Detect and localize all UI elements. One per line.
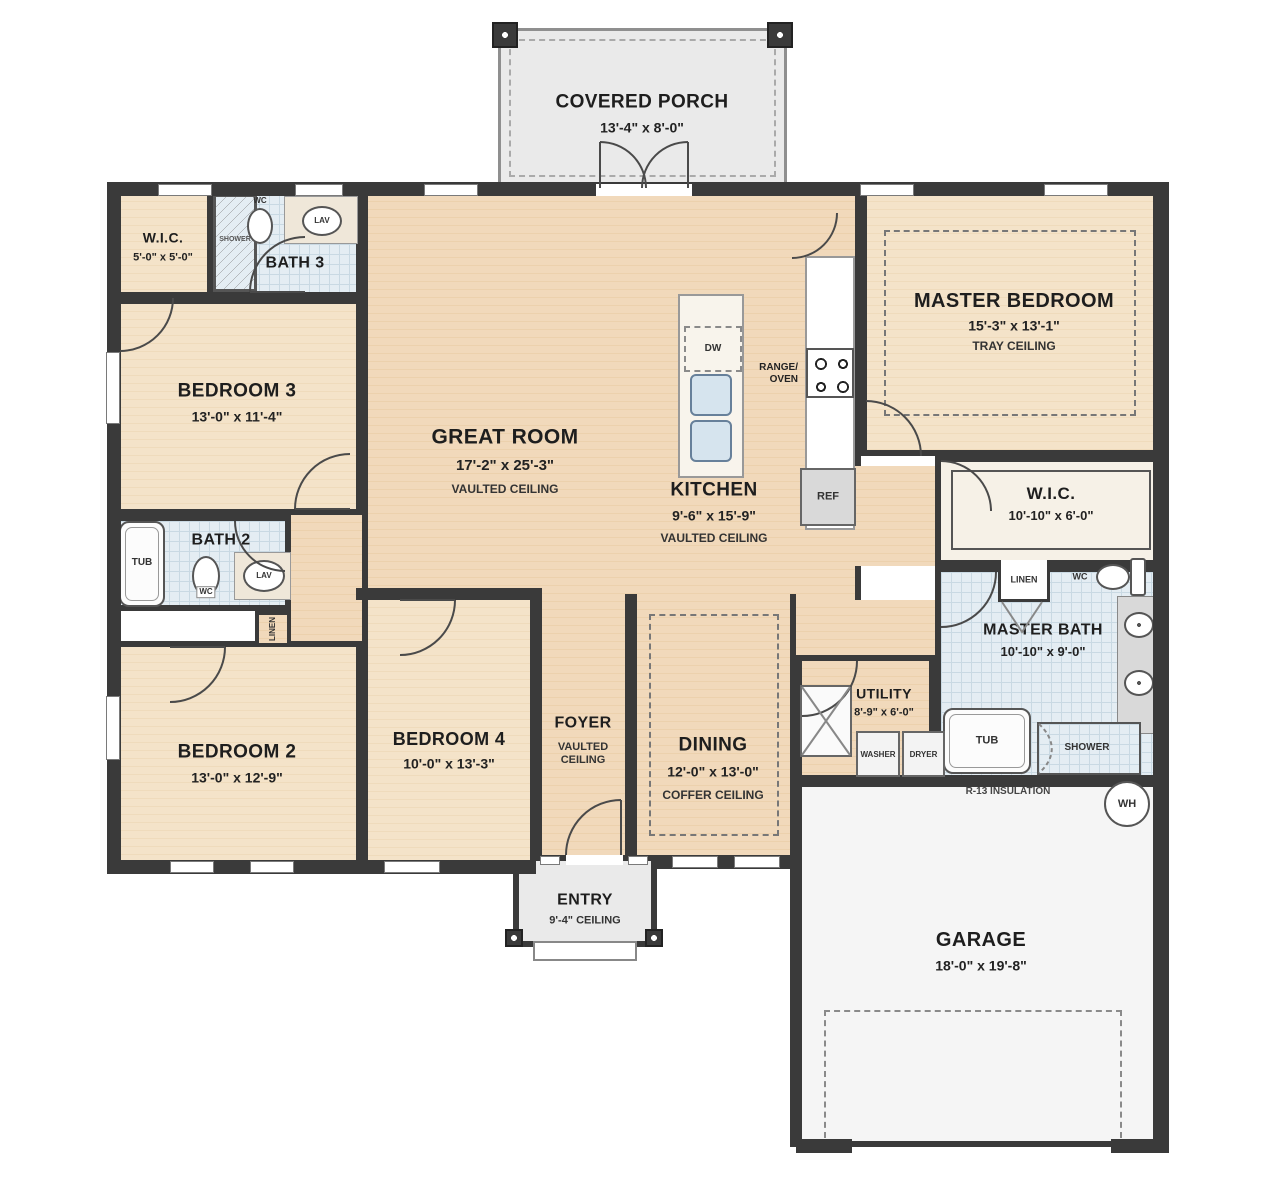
window-top-2	[295, 184, 343, 196]
label-mbath-name: MASTER BATH	[983, 620, 1103, 639]
label-wc-bath3: WC	[253, 196, 266, 206]
label-master-dims: 15'-3" x 13'-1"	[968, 318, 1060, 335]
label-garage-name: GARAGE	[936, 928, 1026, 952]
entry-post-left	[505, 929, 523, 947]
label-linen-master: LINEN	[1011, 575, 1038, 586]
porch-post-right	[767, 22, 793, 48]
wall-right	[1153, 182, 1169, 1153]
label-utility-dims: 8'-9" x 6'-0"	[854, 706, 914, 719]
label-greatroom-dims: 17'-2" x 25'-3"	[456, 457, 554, 475]
label-utility-name: UTILITY	[856, 686, 912, 703]
label-lav-bath3: LAV	[314, 216, 329, 226]
label-mbath-dims: 10'-10" x 9'-0"	[1000, 644, 1085, 660]
dryer-label: DRYER	[910, 750, 938, 759]
label-shower-master: SHOWER	[1065, 742, 1110, 754]
label-bath2-name: BATH 2	[192, 530, 251, 549]
sink-master-1	[1124, 612, 1154, 638]
washer-icon: WASHER	[856, 731, 900, 777]
toilet-master-bowl	[1096, 564, 1130, 590]
window-bedroom2-left	[106, 696, 120, 760]
label-bedroom2-dims: 13'-0" x 12'-9"	[191, 770, 283, 787]
label-kitchen-name: KITCHEN	[670, 480, 757, 503]
label-porch-dims: 13'-4" x 8'-0"	[600, 120, 684, 137]
dryer-icon: DRYER	[902, 731, 945, 777]
porch-door-opening	[596, 184, 692, 196]
room-bedroom3	[113, 298, 362, 515]
label-entry-name: ENTRY	[557, 890, 613, 909]
entry-post-right	[645, 929, 663, 947]
hall-bedrooms	[291, 515, 362, 641]
label-dining-name: DINING	[679, 735, 748, 758]
label-greatroom-note: VAULTED CEILING	[452, 482, 559, 496]
window-top-1	[158, 184, 212, 196]
label-entry-note: 9'-4" CEILING	[549, 914, 620, 927]
entry-stoop	[533, 941, 637, 961]
label-tub-bath2: TUB	[132, 557, 153, 569]
label-bedroom4-name: BEDROOM 4	[393, 729, 506, 751]
floor-plan: WASHER DRYER WH COVERED PORCH 13'-4" x 8…	[0, 0, 1280, 1182]
toilet-master-tank	[1130, 558, 1146, 596]
window-bedroom3	[106, 352, 120, 424]
label-bath3-name: BATH 3	[266, 253, 325, 272]
label-greatroom-name: GREAT ROOM	[431, 424, 578, 449]
label-linen-hall: LINEN	[268, 617, 278, 641]
label-wic3-name: W.I.C.	[143, 230, 184, 247]
room-great-room-kitchen	[362, 188, 861, 600]
window-dining-b1	[672, 856, 718, 868]
kitchen-sink-lower	[690, 420, 732, 462]
window-bedroom4-b	[384, 861, 440, 873]
label-dining-dims: 12'-0" x 13'-0"	[667, 764, 759, 781]
wall-garage-left	[790, 861, 802, 1147]
sink-master-2	[1124, 670, 1154, 696]
wall-garage-door-stub-right	[1111, 1139, 1169, 1153]
label-tub-master: TUB	[976, 734, 999, 747]
label-mwic-name: W.I.C.	[1027, 484, 1076, 504]
porch-post-left	[492, 22, 518, 48]
water-heater-label: WH	[1118, 798, 1136, 810]
label-bedroom3-name: BEDROOM 3	[178, 381, 297, 404]
label-bedroom4-dims: 10'-0" x 13'-3"	[403, 756, 495, 773]
water-heater-icon: WH	[1104, 781, 1150, 827]
label-foyer-name: FOYER	[554, 713, 611, 732]
window-bedroom2-b1	[170, 861, 214, 873]
label-wc-master: WC	[1073, 572, 1088, 583]
utility-sink-box	[800, 685, 852, 757]
front-door-opening	[566, 855, 623, 865]
range-oven	[806, 348, 854, 398]
label-wic3-dims: 5'-0" x 5'-0"	[133, 251, 193, 264]
label-wc-bath2: WC	[196, 586, 215, 598]
hall-master	[855, 466, 935, 566]
washer-label: WASHER	[860, 750, 895, 759]
window-master-2	[1044, 184, 1108, 196]
label-porch-name: COVERED PORCH	[555, 92, 728, 115]
label-master-note: TRAY CEILING	[972, 339, 1055, 353]
garage-door-outline	[824, 1010, 1122, 1138]
coffer-ceiling-outline	[649, 614, 779, 836]
label-bedroom3-dims: 13'-0" x 11'-4"	[192, 409, 283, 426]
hall-utility	[796, 600, 935, 655]
label-foyer-note: VAULTED CEILING	[547, 741, 619, 767]
label-range-oven: RANGE/ OVEN	[716, 362, 798, 386]
front-sidelight-right	[628, 856, 648, 865]
label-lav-bath2: LAV	[256, 571, 271, 581]
label-garage-dims: 18'-0" x 19'-8"	[935, 958, 1027, 975]
label-bedroom2-name: BEDROOM 2	[178, 742, 297, 765]
window-dining-b2	[734, 856, 780, 868]
toilet-bath3-icon	[247, 208, 273, 244]
wall-left	[107, 182, 121, 874]
wall-greatroom-bedroom4	[356, 588, 542, 600]
label-insulation: R-13 INSULATION	[966, 786, 1051, 798]
label-mwic-dims: 10'-10" x 6'-0"	[1008, 508, 1093, 524]
label-kitchen-dims: 9'-6" x 15'-9"	[672, 508, 756, 525]
label-dining-note: COFFER CEILING	[662, 788, 763, 802]
label-master-name: MASTER BEDROOM	[914, 289, 1114, 313]
label-dw: DW	[705, 343, 722, 355]
label-shower-bath3: SHOWER	[219, 236, 251, 244]
window-top-3	[424, 184, 478, 196]
label-ref: REF	[817, 490, 839, 503]
label-kitchen-note: VAULTED CEILING	[661, 531, 768, 545]
wall-garage-door-stub-left	[796, 1139, 852, 1153]
window-bedroom2-b2	[250, 861, 294, 873]
window-master-1	[860, 184, 914, 196]
front-sidelight-left	[540, 856, 560, 865]
